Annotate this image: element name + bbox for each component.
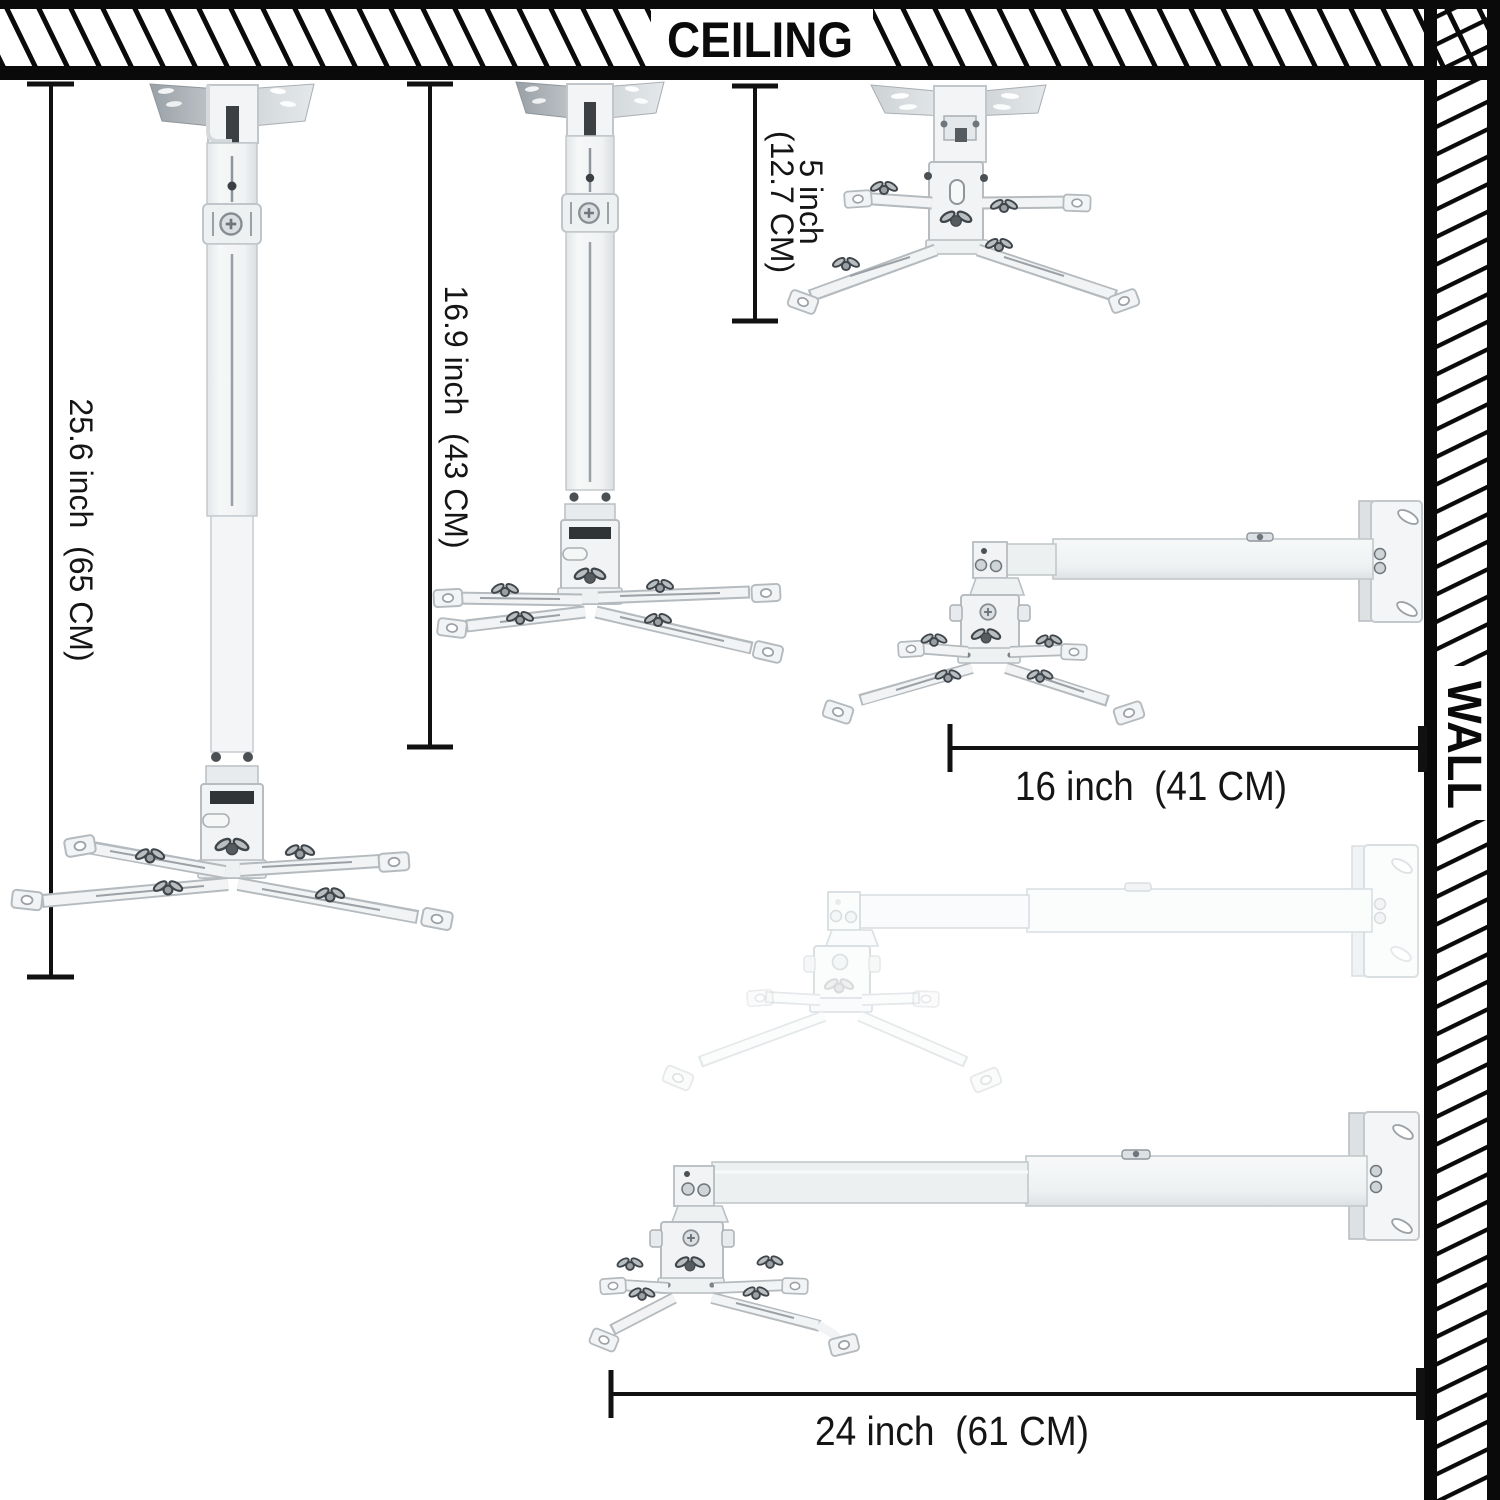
svg-text:CEILING: CEILING xyxy=(667,12,853,68)
svg-text:WALL: WALL xyxy=(1437,681,1490,809)
svg-text:25.6 inch (65 CM): 25.6 inch (65 CM) xyxy=(63,398,99,661)
svg-text:16.9 inch (43 CM): 16.9 inch (43 CM) xyxy=(438,285,474,548)
svg-text:24 inch (61 CM): 24 inch (61 CM) xyxy=(815,1408,1089,1454)
svg-text:(12.7 CM): (12.7 CM) xyxy=(764,131,800,273)
svg-text:16 inch (41 CM): 16 inch (41 CM) xyxy=(1015,763,1287,809)
